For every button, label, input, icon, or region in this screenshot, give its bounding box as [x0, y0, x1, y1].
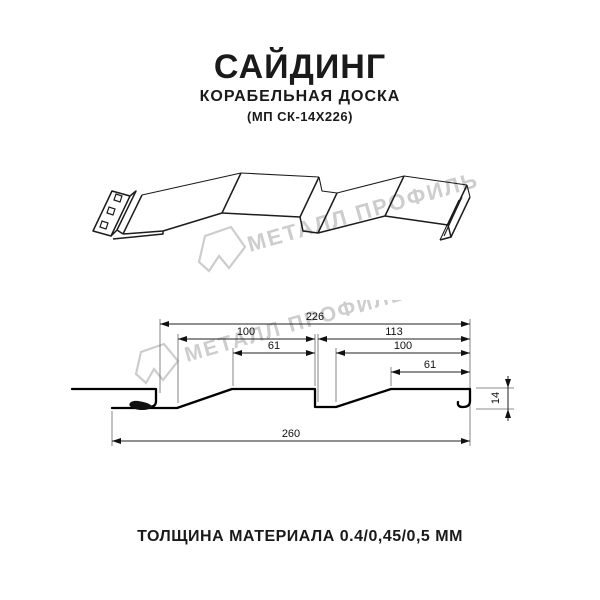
product-diagram-page: САЙДИНГ КОРАБЕЛЬНАЯ ДОСКА (МП СК-14Х226)… [0, 0, 600, 600]
cross-section-drawing: МЕТАЛЛ ПРОФИЛЬ [50, 300, 530, 455]
dim-right-span-label: 113 [385, 326, 403, 338]
nail-strip-holes [100, 194, 122, 229]
panel-section-line [112, 389, 470, 408]
dim-total-label: 226 [306, 311, 324, 323]
watermark-3d: МЕТАЛЛ ПРОФИЛЬ [199, 167, 481, 271]
dimension-lines [112, 324, 508, 441]
dim-right-flat-label: 61 [424, 359, 436, 371]
dim-height-label: 14 [490, 392, 502, 404]
watermark-logo-icon [136, 344, 178, 383]
product-model-code: (МП СК-14Х226) [0, 109, 600, 124]
profile-3d-drawing: МЕТАЛЛ ПРОФИЛЬ [80, 145, 500, 280]
dim-overall-label: 260 [282, 428, 300, 440]
nail-hole-icon [100, 221, 108, 229]
watermark-logo-icon [199, 227, 245, 271]
watermark-text: МЕТАЛЛ ПРОФИЛЬ [244, 167, 481, 257]
nail-hole-icon [107, 207, 115, 215]
page-title: САЙДИНГ [0, 48, 600, 87]
dim-left-pitch-label: 100 [237, 326, 255, 338]
extension-lines [112, 319, 514, 446]
dim-left-flat-label: 61 [268, 340, 280, 352]
dim-right-pitch-label: 100 [394, 340, 412, 352]
material-thickness-note: ТОЛЩИНА МАТЕРИАЛА 0.4/0,45/0,5 ММ [0, 528, 600, 546]
product-subtitle: КОРАБЕЛЬНАЯ ДОСКА [0, 88, 600, 106]
nail-hole-icon [114, 194, 122, 202]
watermark-text: МЕТАЛЛ ПРОФИЛЬ [182, 300, 409, 367]
